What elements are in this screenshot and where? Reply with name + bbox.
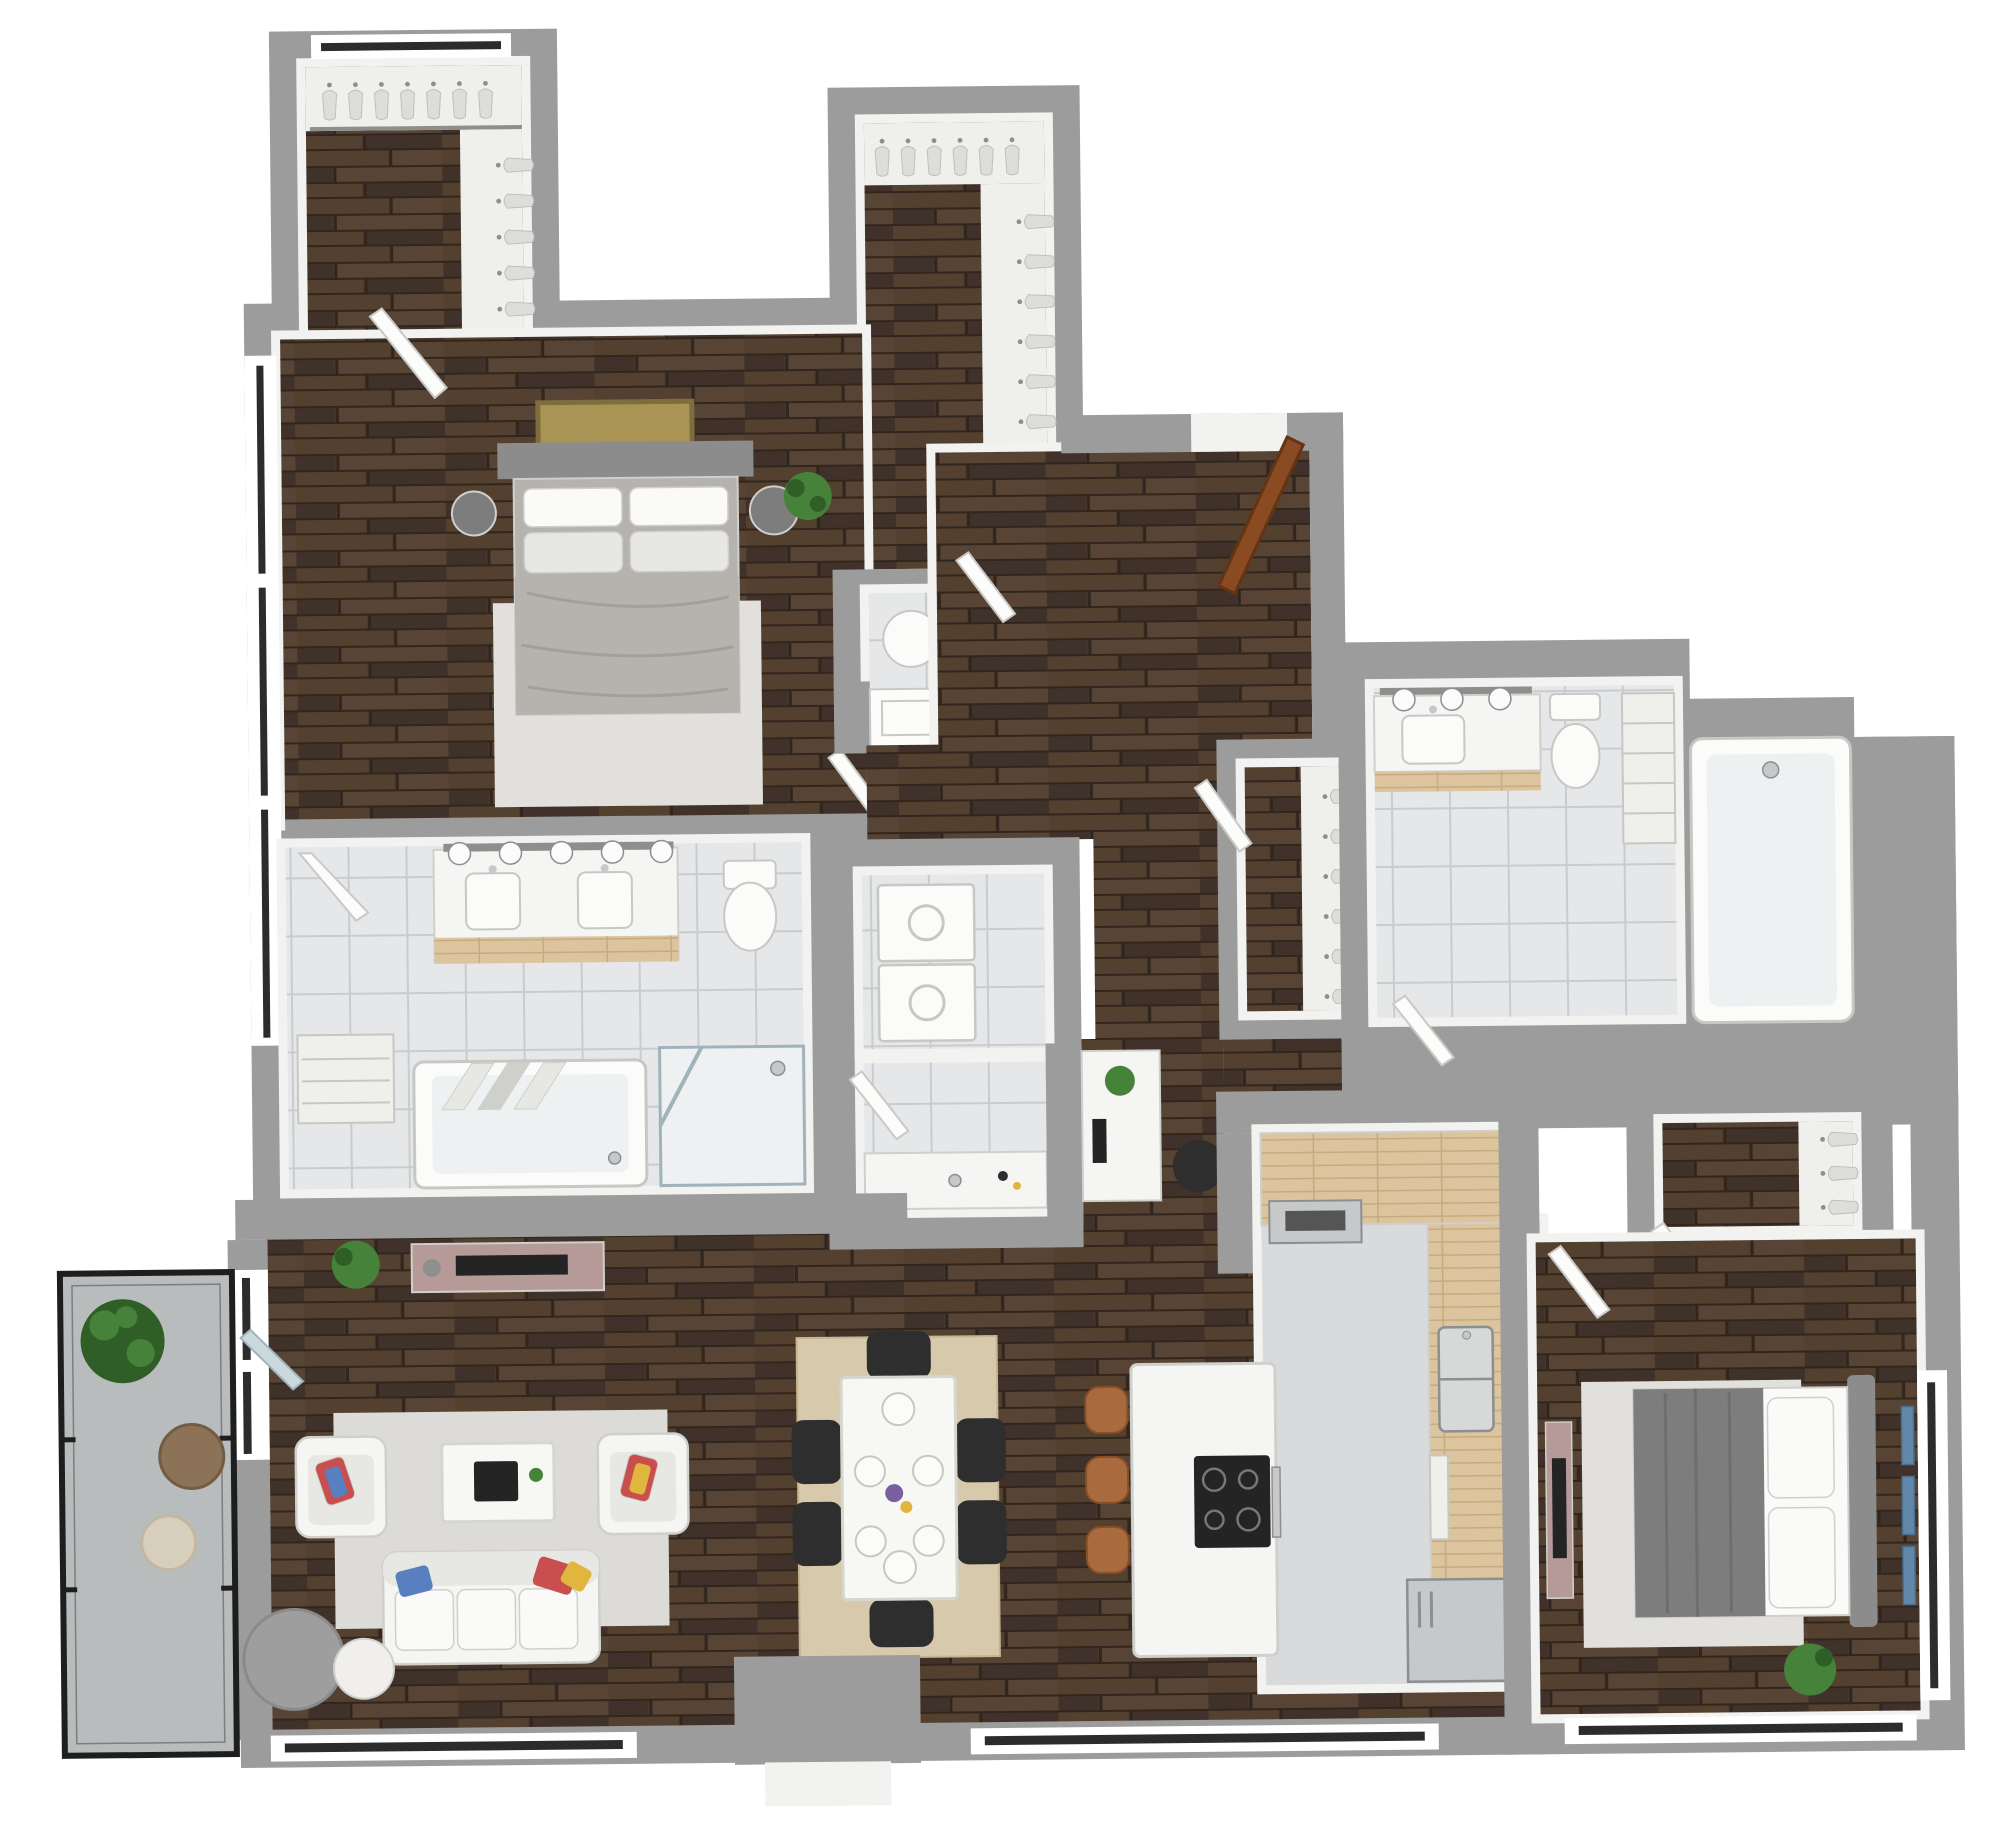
dining-chair[interactable] [867, 1331, 931, 1380]
tv [456, 1255, 568, 1276]
vanity-light [499, 842, 521, 864]
coffee-table [442, 1443, 555, 1522]
toilet-tank [1550, 694, 1600, 721]
sink-divider [1439, 1379, 1493, 1380]
door-glass [243, 1372, 252, 1454]
exterior-wall-fill [1854, 736, 1958, 1111]
table-tray [474, 1461, 518, 1501]
linen-shelves [1622, 693, 1676, 844]
wall-art-set [1901, 1406, 1915, 1604]
stool[interactable] [1085, 1387, 1127, 1433]
dining-chair[interactable] [956, 1500, 1007, 1565]
bar-stools [1085, 1387, 1129, 1573]
pillow [630, 531, 728, 572]
vanity-light [650, 840, 672, 862]
drum-side-table [243, 1609, 344, 1710]
bathtub [414, 1060, 647, 1188]
vanity-drawers [1375, 770, 1541, 792]
front-door-jamb [1191, 413, 1287, 452]
plate [882, 1393, 914, 1425]
plate [855, 1456, 885, 1486]
dishwasher [1430, 1455, 1449, 1539]
linen-cabinet [297, 1034, 394, 1123]
pillow [1767, 1397, 1834, 1498]
toilet [1550, 694, 1601, 789]
vanity-light [1393, 689, 1415, 711]
floor-plan [47, 14, 1966, 1814]
wall-art [538, 401, 692, 447]
dresser-tv [1552, 1458, 1567, 1558]
pouf [334, 1638, 395, 1699]
sofa-cushion [457, 1589, 516, 1650]
column-parapet [765, 1761, 891, 1806]
oven-handle [1272, 1467, 1281, 1537]
sink [578, 872, 633, 929]
cooktop [1194, 1455, 1271, 1548]
duvet [515, 575, 740, 715]
shower-head [771, 1061, 785, 1075]
shower-head [1763, 762, 1779, 778]
window-mullion [249, 796, 281, 810]
glass-shower [660, 1046, 805, 1186]
tub-drain [609, 1152, 621, 1164]
dining-chair[interactable] [792, 1502, 843, 1567]
dining-chair[interactable] [955, 1418, 1006, 1483]
bathtub-shower [1690, 737, 1853, 1023]
dryer [879, 964, 976, 1041]
headboard [497, 441, 753, 480]
pillow [524, 488, 622, 527]
plate [884, 1551, 916, 1583]
vanity-drawers [434, 935, 678, 964]
desk-monitor [1092, 1119, 1106, 1163]
linen-shelves [297, 1034, 394, 1123]
toilet [724, 860, 777, 951]
stool[interactable] [1087, 1527, 1129, 1573]
room-bedroom-2 [1498, 1084, 1965, 1755]
faucet [1463, 1331, 1471, 1339]
sink [466, 873, 521, 930]
tv-console [412, 1242, 604, 1292]
stool[interactable] [1086, 1457, 1128, 1503]
pillow [630, 487, 728, 526]
window-mullion [247, 574, 279, 588]
kitchen-island [1131, 1363, 1282, 1657]
vanity-light [601, 841, 623, 863]
plate [914, 1526, 944, 1556]
floor-plan-canvas [0, 0, 2000, 1835]
dining-chair[interactable] [869, 1599, 933, 1648]
powder-faucet [949, 1174, 961, 1186]
vanity-light [448, 843, 470, 865]
double-vanity [433, 840, 678, 964]
vanity-light [1441, 688, 1463, 710]
structural-column [734, 1655, 921, 1765]
oven-window [1285, 1210, 1345, 1231]
vanity-light [550, 841, 572, 863]
vanity [1374, 686, 1541, 792]
plate [856, 1526, 886, 1556]
kitchen-sink [1439, 1327, 1494, 1432]
sofa[interactable] [383, 1550, 600, 1664]
fridge-body [1407, 1579, 1506, 1682]
balcony-table [159, 1424, 224, 1489]
pillow [524, 532, 622, 573]
tub-basin [1707, 753, 1838, 1006]
refrigerator [1407, 1579, 1506, 1682]
toilet-bowl [1551, 724, 1600, 788]
art-frame [1903, 1546, 1916, 1604]
duvet [1633, 1388, 1765, 1617]
dining-chair[interactable] [791, 1420, 842, 1485]
toilet-bowl [724, 882, 777, 951]
room-bathroom-2 [1337, 636, 1958, 1116]
washer [878, 884, 975, 961]
sofa-cushion [519, 1588, 578, 1649]
room-primary-bathroom [285, 813, 871, 1189]
vanity-light [1489, 688, 1511, 710]
nightstand [452, 491, 496, 535]
art-frame [1902, 1476, 1915, 1534]
desk-wall [1046, 1043, 1084, 1243]
bed [497, 441, 756, 716]
plate [913, 1456, 943, 1486]
living-top-wall [235, 1193, 907, 1240]
sink [1402, 715, 1464, 764]
armchair-left[interactable] [296, 1436, 387, 1537]
headboard [1847, 1375, 1878, 1627]
balcony [60, 1272, 237, 1756]
art-frame [1901, 1406, 1914, 1464]
linen-tower [1622, 693, 1676, 844]
bed-2 [1633, 1375, 1878, 1630]
sofa-cushion [395, 1590, 454, 1651]
room-dining [791, 1330, 1008, 1658]
room-powder-vanity [850, 1062, 1048, 1210]
pillow [1768, 1507, 1835, 1608]
balcony-pouf [141, 1515, 196, 1570]
floor-plan-stage [0, 0, 2000, 1835]
closet-side-wall [834, 681, 871, 753]
armchair-right[interactable] [598, 1433, 689, 1534]
